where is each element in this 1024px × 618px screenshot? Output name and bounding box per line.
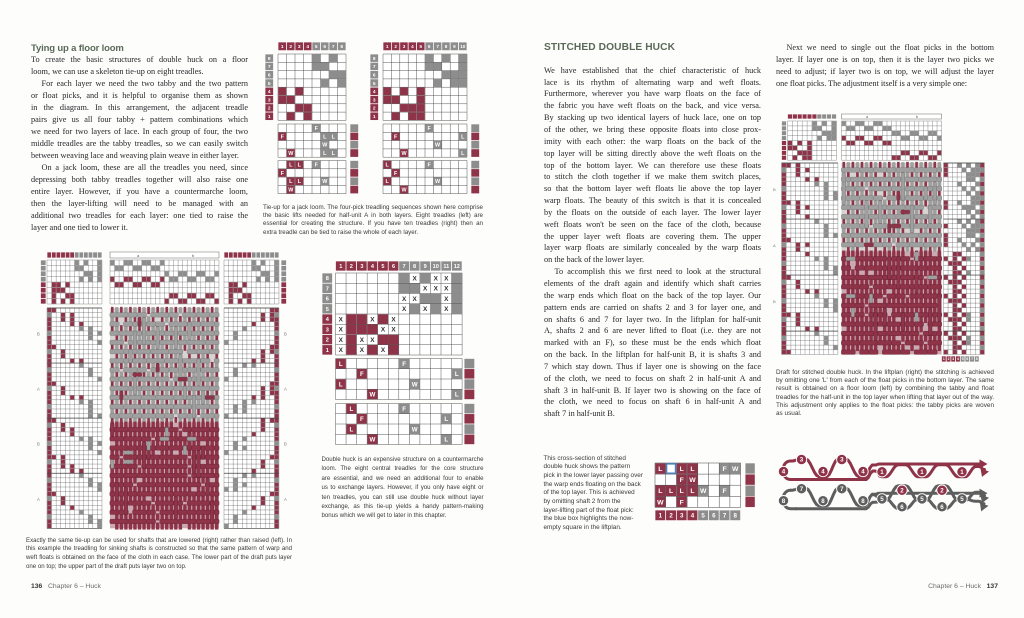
- svg-text:L: L: [690, 466, 694, 473]
- svg-text:3: 3: [268, 97, 271, 103]
- svg-text:4: 4: [306, 44, 309, 50]
- svg-text:9: 9: [424, 264, 427, 270]
- svg-text:7: 7: [268, 64, 271, 70]
- svg-text:6: 6: [428, 44, 431, 49]
- svg-text:2: 2: [900, 487, 904, 494]
- svg-text:L: L: [455, 392, 459, 399]
- svg-text:3: 3: [680, 513, 684, 520]
- svg-text:W: W: [700, 488, 707, 495]
- svg-text:5: 5: [920, 496, 924, 503]
- svg-text:3: 3: [952, 357, 954, 361]
- svg-text:X: X: [402, 306, 407, 313]
- svg-text:2: 2: [394, 44, 397, 49]
- svg-text:X: X: [360, 347, 365, 354]
- svg-text:X: X: [381, 327, 386, 334]
- svg-text:L: L: [349, 426, 353, 433]
- svg-text:L: L: [444, 416, 448, 423]
- svg-text:X: X: [444, 275, 449, 282]
- svg-text:8: 8: [445, 44, 448, 49]
- svg-text:X: X: [444, 296, 449, 303]
- svg-text:3: 3: [403, 44, 406, 49]
- svg-text:3: 3: [800, 457, 804, 464]
- svg-text:X: X: [444, 306, 449, 313]
- svg-text:1: 1: [268, 114, 271, 120]
- svg-text:2: 2: [373, 106, 376, 112]
- svg-text:7: 7: [436, 44, 439, 49]
- svg-text:F: F: [360, 371, 364, 378]
- svg-text:W: W: [732, 466, 739, 473]
- svg-text:7: 7: [403, 264, 406, 270]
- svg-text:L: L: [658, 488, 662, 495]
- svg-text:F: F: [722, 488, 726, 495]
- svg-text:5: 5: [381, 264, 384, 270]
- svg-text:8: 8: [861, 498, 865, 505]
- svg-text:6: 6: [392, 264, 395, 270]
- svg-text:4: 4: [268, 89, 271, 95]
- svg-text:8: 8: [734, 513, 738, 520]
- svg-text:5: 5: [880, 496, 884, 503]
- svg-text:F: F: [402, 406, 406, 413]
- svg-text:L: L: [444, 437, 448, 444]
- svg-text:L: L: [669, 488, 673, 495]
- svg-text:5: 5: [962, 357, 964, 361]
- svg-text:L: L: [339, 381, 343, 388]
- svg-text:b: b: [916, 115, 918, 119]
- svg-text:X: X: [339, 327, 344, 334]
- svg-text:X: X: [339, 316, 344, 323]
- svg-text:X: X: [339, 347, 344, 354]
- svg-text:B: B: [773, 187, 776, 192]
- svg-text:X: X: [381, 347, 386, 354]
- svg-text:7: 7: [332, 44, 335, 50]
- svg-text:X: X: [370, 337, 375, 344]
- svg-text:5: 5: [326, 307, 329, 313]
- svg-text:X: X: [370, 316, 375, 323]
- svg-text:L: L: [339, 361, 343, 368]
- svg-text:X: X: [402, 296, 407, 303]
- svg-text:F: F: [680, 499, 684, 506]
- svg-text:6: 6: [326, 297, 329, 303]
- svg-text:5: 5: [268, 81, 271, 87]
- svg-text:F: F: [360, 416, 364, 423]
- svg-text:3: 3: [360, 264, 363, 270]
- svg-text:A: A: [284, 497, 287, 502]
- svg-text:L: L: [349, 406, 353, 413]
- svg-text:7: 7: [800, 486, 804, 493]
- svg-text:6: 6: [268, 72, 271, 78]
- svg-text:W: W: [370, 437, 376, 444]
- svg-text:8: 8: [413, 264, 416, 270]
- svg-text:X: X: [412, 275, 417, 282]
- svg-text:4: 4: [957, 357, 959, 361]
- svg-text:W: W: [435, 179, 441, 185]
- svg-text:4: 4: [411, 44, 414, 49]
- svg-text:8: 8: [340, 44, 343, 50]
- svg-text:7: 7: [840, 486, 844, 493]
- svg-text:5: 5: [960, 496, 964, 503]
- svg-text:X: X: [360, 337, 365, 344]
- svg-text:2: 2: [948, 357, 950, 361]
- svg-text:2: 2: [289, 44, 292, 50]
- svg-text:8: 8: [268, 56, 271, 62]
- svg-text:W: W: [412, 426, 418, 433]
- svg-text:8: 8: [326, 276, 329, 282]
- svg-text:6: 6: [966, 357, 968, 361]
- svg-text:W: W: [435, 143, 441, 149]
- svg-text:A: A: [37, 497, 40, 502]
- svg-text:8: 8: [976, 357, 978, 361]
- svg-text:3: 3: [373, 97, 376, 103]
- svg-text:X: X: [423, 286, 428, 293]
- svg-text:3: 3: [840, 457, 844, 464]
- svg-text:6: 6: [712, 513, 716, 520]
- svg-text:2: 2: [350, 264, 353, 270]
- svg-text:2: 2: [268, 106, 271, 112]
- svg-text:1: 1: [373, 114, 376, 120]
- svg-text:12: 12: [454, 264, 460, 270]
- svg-text:1: 1: [880, 469, 884, 476]
- svg-text:L: L: [690, 488, 694, 495]
- svg-text:W: W: [412, 381, 418, 388]
- svg-text:W: W: [689, 477, 696, 484]
- svg-text:L: L: [680, 488, 684, 495]
- svg-text:X: X: [391, 327, 396, 334]
- svg-text:1: 1: [339, 264, 342, 270]
- svg-text:6: 6: [323, 44, 326, 50]
- svg-text:A: A: [773, 243, 776, 248]
- svg-text:L: L: [680, 466, 684, 473]
- svg-text:5: 5: [315, 44, 318, 50]
- svg-text:7: 7: [971, 357, 973, 361]
- svg-text:2: 2: [940, 487, 944, 494]
- svg-text:1: 1: [326, 348, 329, 354]
- svg-text:10: 10: [460, 44, 466, 49]
- svg-text:3: 3: [298, 44, 301, 50]
- svg-text:8: 8: [782, 498, 786, 505]
- svg-text:A: A: [37, 387, 40, 392]
- svg-text:W: W: [370, 392, 376, 399]
- svg-text:B: B: [773, 299, 776, 304]
- svg-text:1: 1: [659, 513, 663, 520]
- svg-text:X: X: [423, 306, 428, 313]
- svg-text:6: 6: [373, 72, 376, 78]
- svg-text:4: 4: [821, 469, 825, 476]
- svg-text:4: 4: [373, 89, 376, 95]
- svg-text:1: 1: [281, 44, 284, 50]
- svg-text:X: X: [339, 337, 344, 344]
- svg-text:2: 2: [326, 338, 329, 344]
- svg-text:4: 4: [691, 513, 695, 520]
- svg-text:B: B: [37, 442, 40, 447]
- svg-text:X: X: [444, 286, 449, 293]
- svg-text:7: 7: [723, 513, 727, 520]
- svg-text:1: 1: [960, 469, 964, 476]
- svg-text:3: 3: [326, 327, 329, 333]
- svg-text:W: W: [657, 499, 664, 506]
- svg-text:X: X: [434, 286, 439, 293]
- svg-text:6: 6: [940, 504, 944, 511]
- svg-text:B: B: [284, 332, 287, 337]
- svg-text:F: F: [402, 361, 406, 368]
- svg-text:8: 8: [821, 498, 825, 505]
- svg-text:X: X: [391, 316, 396, 323]
- svg-text:6: 6: [900, 504, 904, 511]
- svg-text:5: 5: [373, 81, 376, 87]
- svg-text:1: 1: [943, 357, 945, 361]
- svg-text:1: 1: [386, 44, 389, 49]
- svg-text:L: L: [658, 466, 662, 473]
- svg-text:1: 1: [920, 469, 924, 476]
- svg-text:X: X: [434, 275, 439, 282]
- svg-text:A: A: [284, 387, 287, 392]
- svg-text:11: 11: [443, 264, 449, 270]
- svg-text:7: 7: [326, 286, 329, 292]
- svg-text:L: L: [455, 371, 459, 378]
- svg-text:5: 5: [420, 44, 423, 49]
- svg-text:4: 4: [861, 469, 865, 476]
- svg-text:8: 8: [373, 56, 376, 62]
- svg-text:7: 7: [373, 64, 376, 70]
- svg-text:B: B: [37, 332, 40, 337]
- svg-text:F: F: [680, 477, 684, 484]
- svg-text:9: 9: [453, 44, 456, 49]
- svg-text:2: 2: [669, 513, 673, 520]
- svg-text:X: X: [412, 296, 417, 303]
- svg-text:F: F: [722, 466, 726, 473]
- svg-text:4: 4: [782, 469, 786, 476]
- svg-text:5: 5: [701, 513, 705, 520]
- svg-text:B: B: [284, 442, 287, 447]
- svg-text:10: 10: [433, 264, 439, 270]
